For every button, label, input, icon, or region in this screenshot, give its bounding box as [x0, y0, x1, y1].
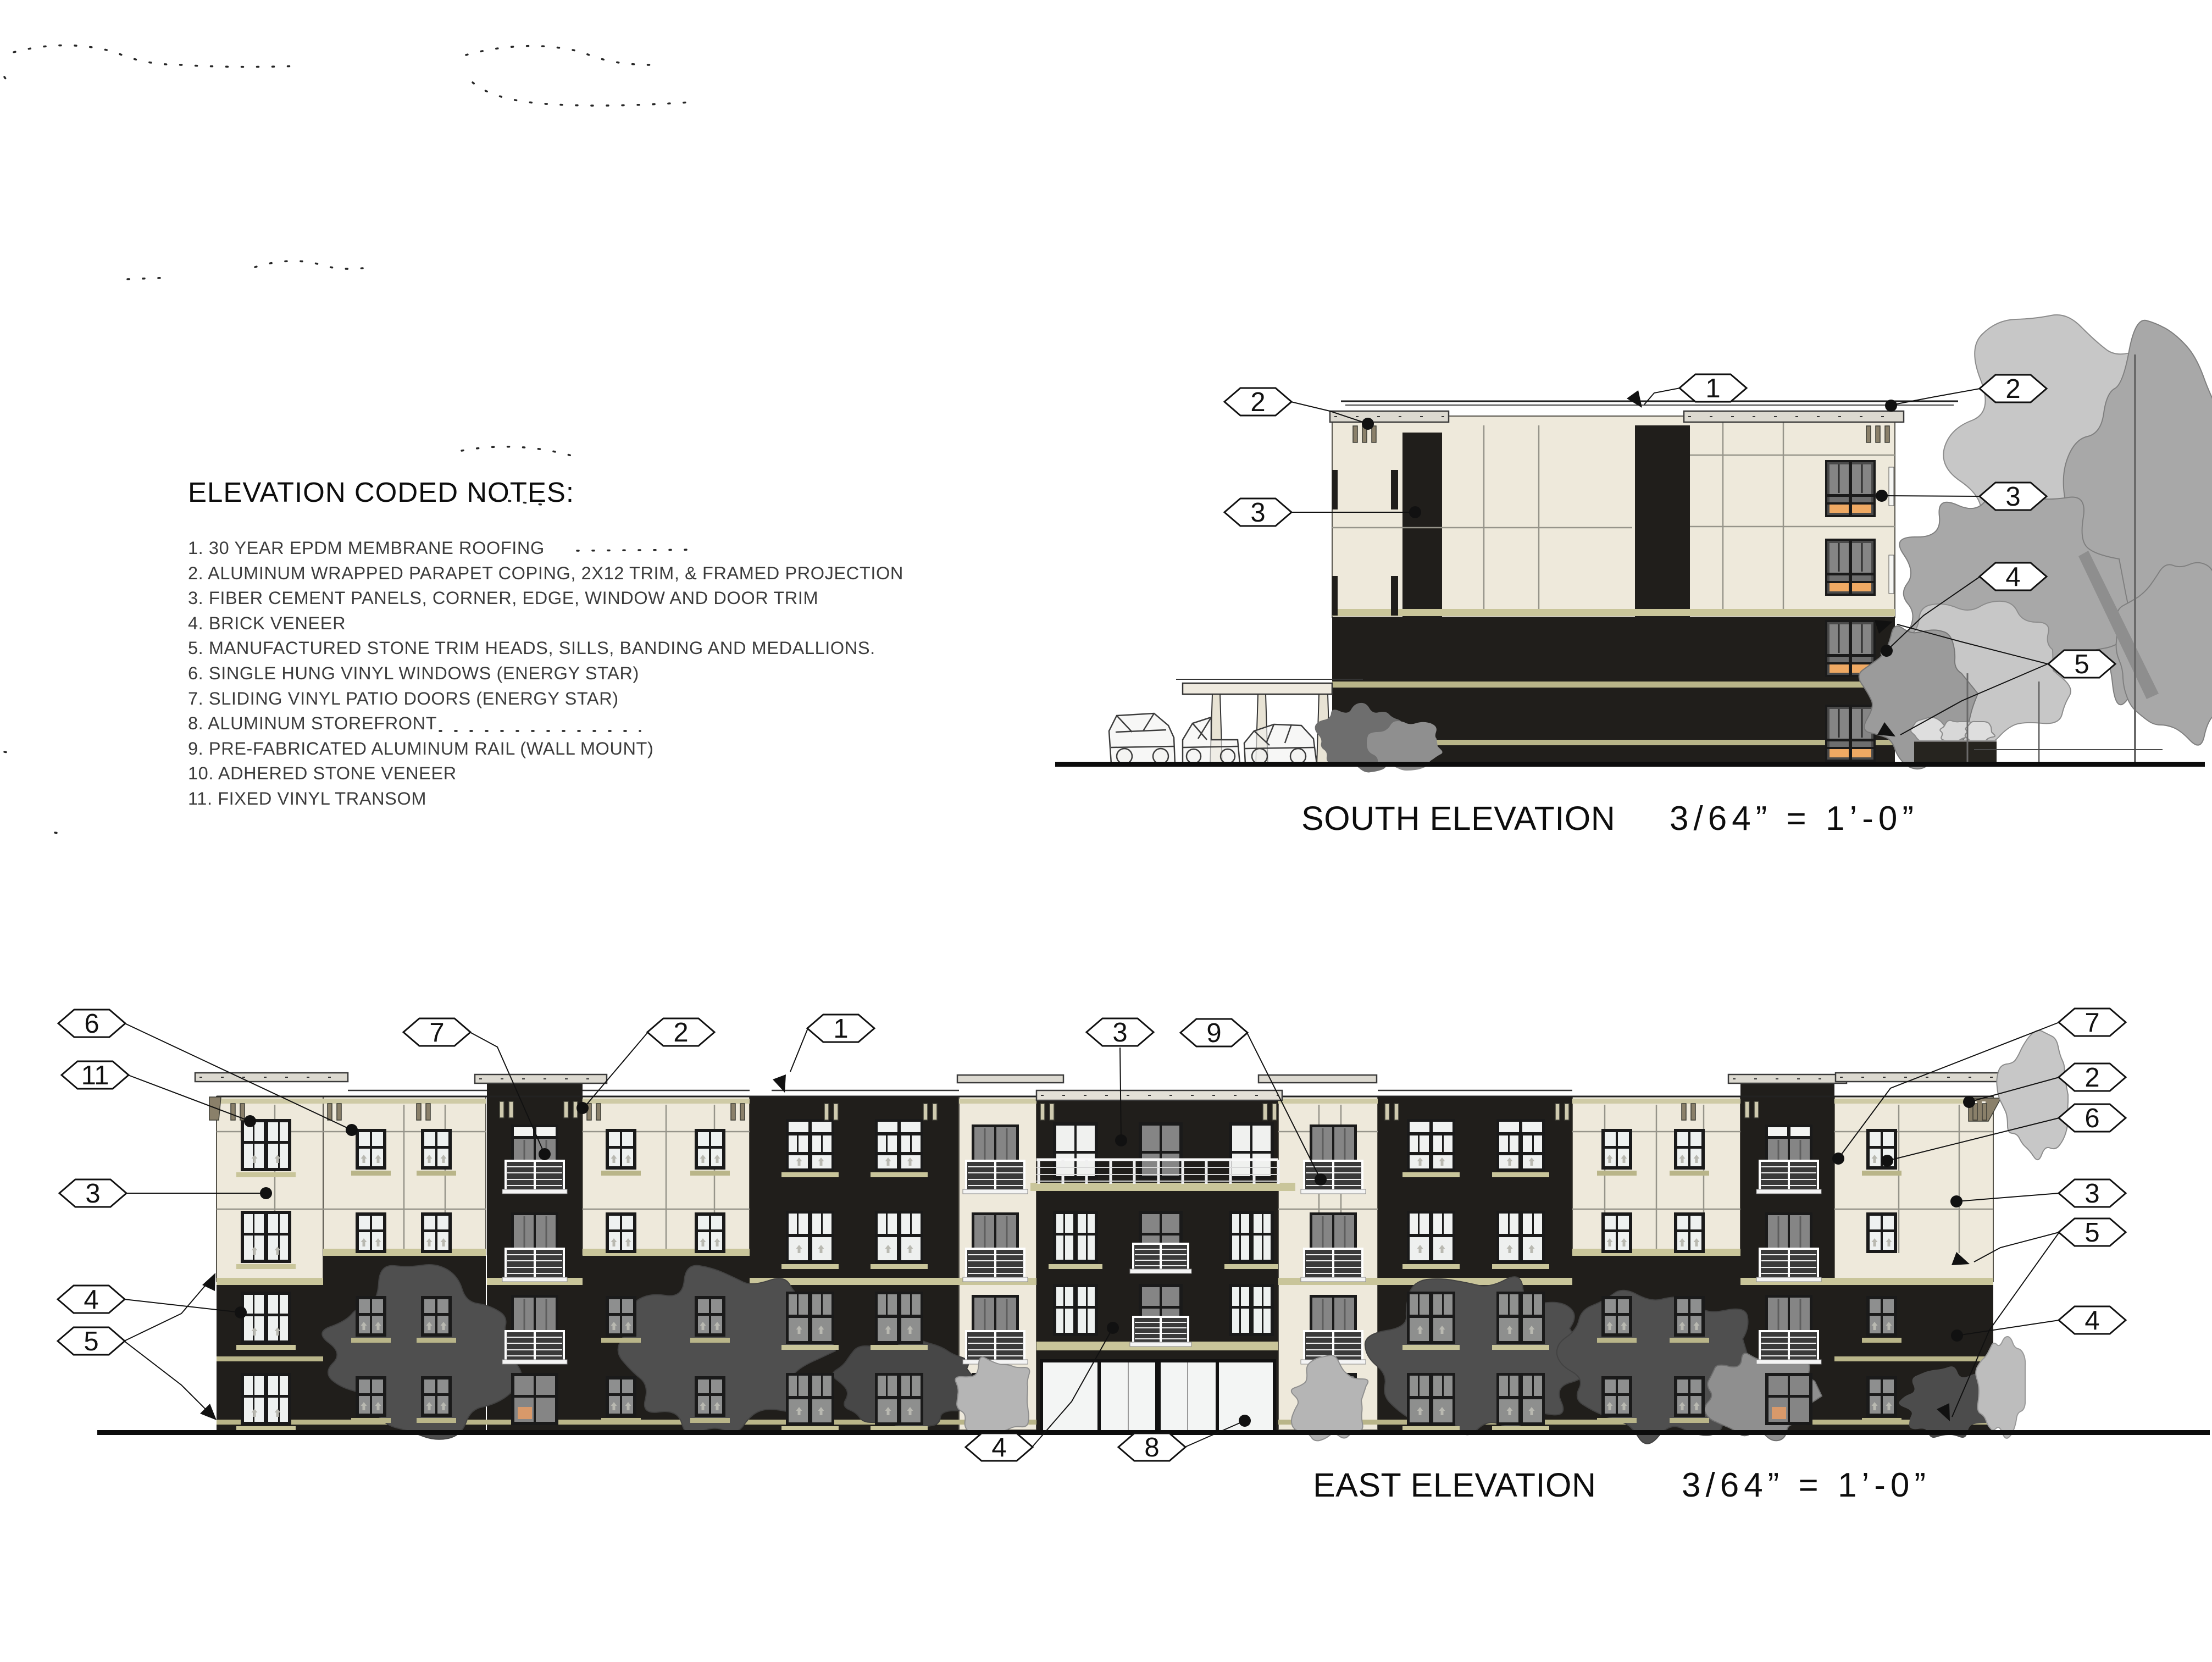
- svg-text:8: 8: [1144, 1433, 1159, 1462]
- svg-text:3: 3: [2005, 482, 2020, 512]
- svg-text:SOUTH ELEVATION: SOUTH ELEVATION: [1301, 800, 1615, 837]
- svg-text:5: 5: [2074, 650, 2089, 679]
- svg-text:11. FIXED VINYL TRANSOM: 11. FIXED VINYL TRANSOM: [188, 789, 426, 808]
- svg-text:7: 7: [429, 1018, 444, 1048]
- svg-text:2. ALUMINUM WRAPPED PARAPET CO: 2. ALUMINUM WRAPPED PARAPET COPING, 2X12…: [188, 563, 903, 583]
- svg-text:2: 2: [2085, 1063, 2099, 1093]
- svg-text:9: 9: [1206, 1018, 1221, 1048]
- svg-text:6: 6: [2085, 1104, 2099, 1133]
- svg-text:10. ADHERED STONE VENEER: 10. ADHERED STONE VENEER: [188, 763, 457, 783]
- svg-text:4: 4: [2005, 562, 2020, 592]
- svg-text:2: 2: [1250, 387, 1265, 417]
- svg-text:ELEVATION CODED NOTES:: ELEVATION CODED NOTES:: [188, 477, 574, 508]
- svg-text:4: 4: [991, 1433, 1006, 1462]
- svg-text:3/64” = 1’-0”: 3/64” = 1’-0”: [1682, 1466, 1931, 1504]
- svg-text:4: 4: [2085, 1306, 2099, 1336]
- svg-text:1. 30 YEAR EPDM MEMBRANE ROOFI: 1. 30 YEAR EPDM MEMBRANE ROOFING: [188, 538, 545, 558]
- svg-text:3: 3: [85, 1179, 100, 1209]
- svg-text:6: 6: [84, 1009, 99, 1039]
- svg-text:4: 4: [84, 1285, 98, 1315]
- svg-text:3. FIBER CEMENT PANELS, CORNER: 3. FIBER CEMENT PANELS, CORNER, EDGE, WI…: [188, 588, 818, 608]
- svg-text:5: 5: [84, 1327, 98, 1356]
- svg-text:3: 3: [2085, 1179, 2099, 1209]
- svg-text:3: 3: [1250, 498, 1265, 528]
- svg-text:11: 11: [81, 1061, 109, 1090]
- svg-text:7. SLIDING VINYL PATIO DOORS (: 7. SLIDING VINYL PATIO DOORS (ENERGY STA…: [188, 689, 619, 708]
- svg-text:1: 1: [833, 1014, 848, 1044]
- svg-text:5. MANUFACTURED STONE TRIM HEA: 5. MANUFACTURED STONE TRIM HEADS, SILLS,…: [188, 638, 875, 658]
- svg-text:3: 3: [1112, 1018, 1127, 1048]
- svg-text:8. ALUMINUM STOREFRONT: 8. ALUMINUM STOREFRONT: [188, 713, 437, 733]
- svg-text:7: 7: [2085, 1008, 2099, 1038]
- svg-text:5: 5: [2085, 1218, 2099, 1248]
- svg-text:9. PRE-FABRICATED ALUMINUM RAI: 9. PRE-FABRICATED ALUMINUM RAIL (WALL MO…: [188, 739, 653, 758]
- svg-text:4. BRICK VENEER: 4. BRICK VENEER: [188, 613, 346, 633]
- svg-text:6. SINGLE HUNG VINYL WINDOWS (: 6. SINGLE HUNG VINYL WINDOWS (ENERGY STA…: [188, 663, 639, 683]
- svg-text:2: 2: [673, 1018, 688, 1048]
- svg-text:1: 1: [1705, 374, 1720, 403]
- svg-text:EAST ELEVATION: EAST ELEVATION: [1313, 1466, 1596, 1504]
- svg-text:3/64” = 1’-0”: 3/64” = 1’-0”: [1670, 800, 1919, 838]
- svg-text:2: 2: [2005, 374, 2020, 404]
